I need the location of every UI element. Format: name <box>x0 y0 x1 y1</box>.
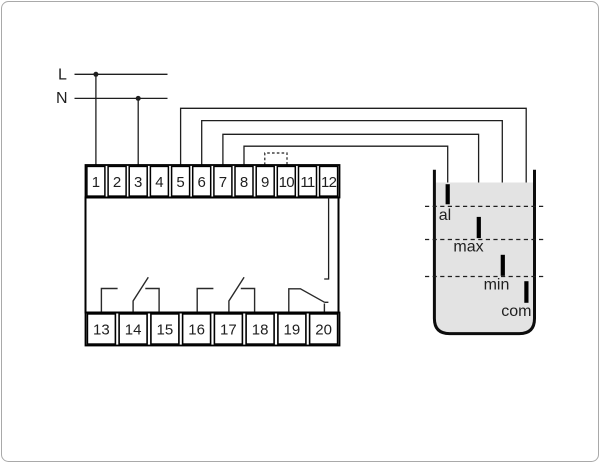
svg-text:9: 9 <box>261 174 269 191</box>
svg-text:16: 16 <box>188 322 205 339</box>
svg-text:20: 20 <box>315 322 332 339</box>
svg-text:min: min <box>484 276 510 293</box>
svg-text:13: 13 <box>93 322 110 339</box>
svg-text:2: 2 <box>113 174 121 191</box>
svg-text:max: max <box>453 239 483 256</box>
svg-text:19: 19 <box>284 322 301 339</box>
svg-text:12: 12 <box>321 174 337 191</box>
svg-text:8: 8 <box>240 174 248 191</box>
svg-text:17: 17 <box>220 322 237 339</box>
svg-text:4: 4 <box>155 174 163 191</box>
svg-text:15: 15 <box>157 322 174 339</box>
svg-text:11: 11 <box>300 174 315 191</box>
svg-text:6: 6 <box>198 174 206 191</box>
svg-text:14: 14 <box>125 322 142 339</box>
svg-text:al: al <box>439 207 451 224</box>
svg-text:com: com <box>501 303 531 320</box>
svg-text:10: 10 <box>279 174 295 191</box>
svg-text:5: 5 <box>176 174 184 191</box>
svg-text:7: 7 <box>219 174 227 191</box>
svg-text:18: 18 <box>252 322 269 339</box>
svg-text:N: N <box>56 90 68 107</box>
svg-text:1: 1 <box>92 174 100 191</box>
svg-text:3: 3 <box>134 174 142 191</box>
svg-text:L: L <box>58 67 67 84</box>
